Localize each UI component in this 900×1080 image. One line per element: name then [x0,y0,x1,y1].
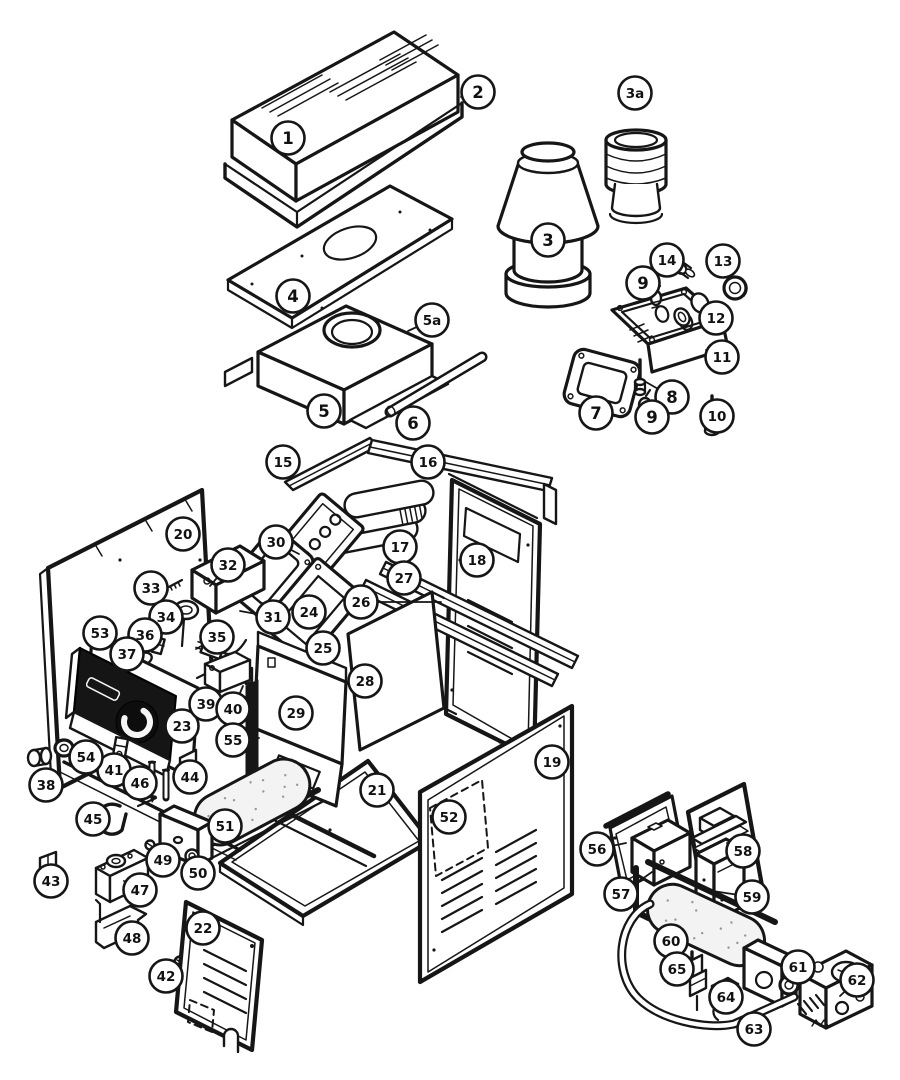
callout-42: 42 [150,960,183,993]
callout-number-60: 60 [662,934,681,950]
callout-number-9: 9 [637,274,648,293]
callout-10: 10 [701,400,734,433]
callout-number-35: 35 [208,630,227,646]
callout-37: 37 [111,638,144,671]
callout-65: 65 [661,953,694,986]
callout-number-56: 56 [588,842,607,858]
callout-number-18: 18 [468,553,487,569]
callout-63: 63 [738,1013,771,1046]
callout-number-50: 50 [189,866,208,882]
callout-24: 24 [293,596,326,629]
callout-number-47: 47 [131,883,150,899]
part-vent-adapter [606,130,666,223]
callout-45: 45 [77,803,110,836]
part-bushing-38 [28,748,51,766]
callout-number-29: 29 [287,706,306,722]
callout-number-22: 22 [194,921,213,937]
callout-51: 51 [209,810,242,843]
callout-number-40: 40 [224,702,243,718]
callout-15: 15 [267,446,300,479]
callout-number-33: 33 [142,581,161,597]
callout-19: 19 [536,746,569,779]
callout-number-37: 37 [118,647,137,663]
callout-number-20: 20 [174,527,193,543]
callout-20: 20 [167,518,200,551]
callout-number-8: 8 [666,388,677,407]
callout-49: 49 [147,844,180,877]
callout-number-61: 61 [789,960,808,976]
callout-3: 3 [532,224,565,257]
callout-number-24: 24 [300,605,319,621]
callout-54: 54 [70,741,103,774]
callout-number-27: 27 [395,571,414,587]
callout-number-9: 9 [646,408,657,427]
callout-number-6: 6 [407,414,418,433]
callout-number-57: 57 [612,887,631,903]
callout-number-63: 63 [745,1022,764,1038]
callout-number-49: 49 [154,853,173,869]
callout-number-38: 38 [37,778,56,794]
callout-number-1: 1 [282,129,293,148]
callout-number-17: 17 [391,540,410,556]
callout-number-15: 15 [274,455,293,471]
callout-number-28: 28 [356,674,375,690]
callout-number-14: 14 [658,253,677,269]
callout-number-53: 53 [91,626,110,642]
callout-number-62: 62 [848,973,867,989]
callout-1: 1 [272,122,305,155]
callout-number-3: 3 [542,231,553,250]
callout-number-32: 32 [219,558,238,574]
callout-3a: 3a [619,77,652,110]
callout-number-5a: 5a [423,313,442,329]
callout-16: 16 [412,446,445,479]
callout-number-13: 13 [714,254,733,270]
part-top-plate [228,186,452,328]
callout-27: 27 [388,562,421,595]
callout-number-52: 52 [440,810,459,826]
callout-21: 21 [361,774,394,807]
callout-5a: 5a [408,304,449,337]
callout-47: 47 [124,874,157,907]
callout-53: 53 [84,617,117,650]
callout-number-34: 34 [157,610,176,626]
callout-6: 6 [397,407,430,440]
callout-7: 7 [580,397,613,430]
callout-48: 48 [116,922,149,955]
callout-number-11: 11 [713,350,732,366]
callout-58: 58 [727,835,760,868]
callout-2: 2 [461,76,495,109]
callout-28: 28 [349,665,382,698]
callout-number-12: 12 [707,311,726,327]
callout-number-23: 23 [173,719,192,735]
callout-number-43: 43 [42,874,61,890]
callout-17: 17 [384,531,417,564]
callout-number-31: 31 [264,610,283,626]
callout-12: 12 [700,302,733,335]
callout-22: 22 [187,912,220,945]
callout-64: 64 [710,981,743,1014]
callout-number-41: 41 [105,763,124,779]
callout-number-25: 25 [314,641,333,657]
callout-number-2: 2 [472,83,483,102]
callout-61: 61 [782,951,815,984]
callout-number-39: 39 [197,697,216,713]
callout-number-21: 21 [368,783,387,799]
callout-50: 50 [182,857,215,890]
part-fitting-13 [724,277,747,299]
callout-number-26: 26 [352,595,371,611]
callout-number-5: 5 [318,402,329,421]
callout-43: 43 [35,865,68,898]
callout-46: 46 [124,767,157,800]
callout-number-58: 58 [734,844,753,860]
callout-9: 9 [636,401,669,434]
callout-25: 25 [307,632,340,665]
callout-number-46: 46 [131,776,150,792]
callout-4: 4 [277,280,310,313]
callout-number-51: 51 [216,819,235,835]
callout-62: 62 [840,964,874,997]
callout-44: 44 [174,761,207,794]
callout-number-10: 10 [708,409,727,425]
callout-number-48: 48 [123,931,142,947]
callout-number-7: 7 [590,404,601,423]
diagram-art: 123a345a56789910111213141516171819202122… [0,0,900,1080]
callout-number-55: 55 [224,733,243,749]
callout-number-59: 59 [743,890,762,906]
callout-number-64: 64 [717,990,736,1006]
callout-number-30: 30 [267,535,286,551]
callout-11: 11 [706,341,739,374]
callout-number-44: 44 [181,770,200,786]
callout-18: 18 [461,544,494,577]
callout-number-16: 16 [419,455,438,471]
callout-number-4: 4 [287,287,298,306]
callout-number-45: 45 [84,812,103,828]
exploded-parts-diagram: 123a345a56789910111213141516171819202122… [0,0,900,1080]
part-top-cover [225,32,462,227]
callout-number-65: 65 [668,962,687,978]
callout-38: 38 [30,769,63,802]
callout-number-19: 19 [543,755,562,771]
callout-52: 52 [433,801,466,834]
callout-13: 13 [707,245,740,278]
callout-number-42: 42 [157,969,176,985]
callout-number-3a: 3a [626,86,645,102]
callout-14: 14 [651,244,684,277]
callout-29: 29 [280,697,313,730]
callout-5: 5 [308,395,341,428]
callout-number-54: 54 [77,750,96,766]
